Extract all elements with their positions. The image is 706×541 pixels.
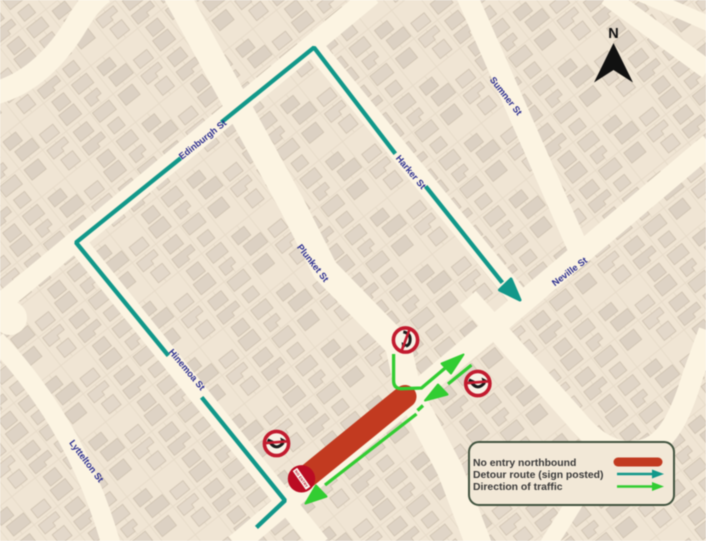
svg-text:Detour route (sign posted): Detour route (sign posted)	[473, 470, 603, 481]
svg-text:No entry northbound: No entry northbound	[473, 458, 576, 469]
svg-text:N: N	[608, 26, 618, 42]
svg-text:Direction of traffic: Direction of traffic	[473, 482, 563, 493]
